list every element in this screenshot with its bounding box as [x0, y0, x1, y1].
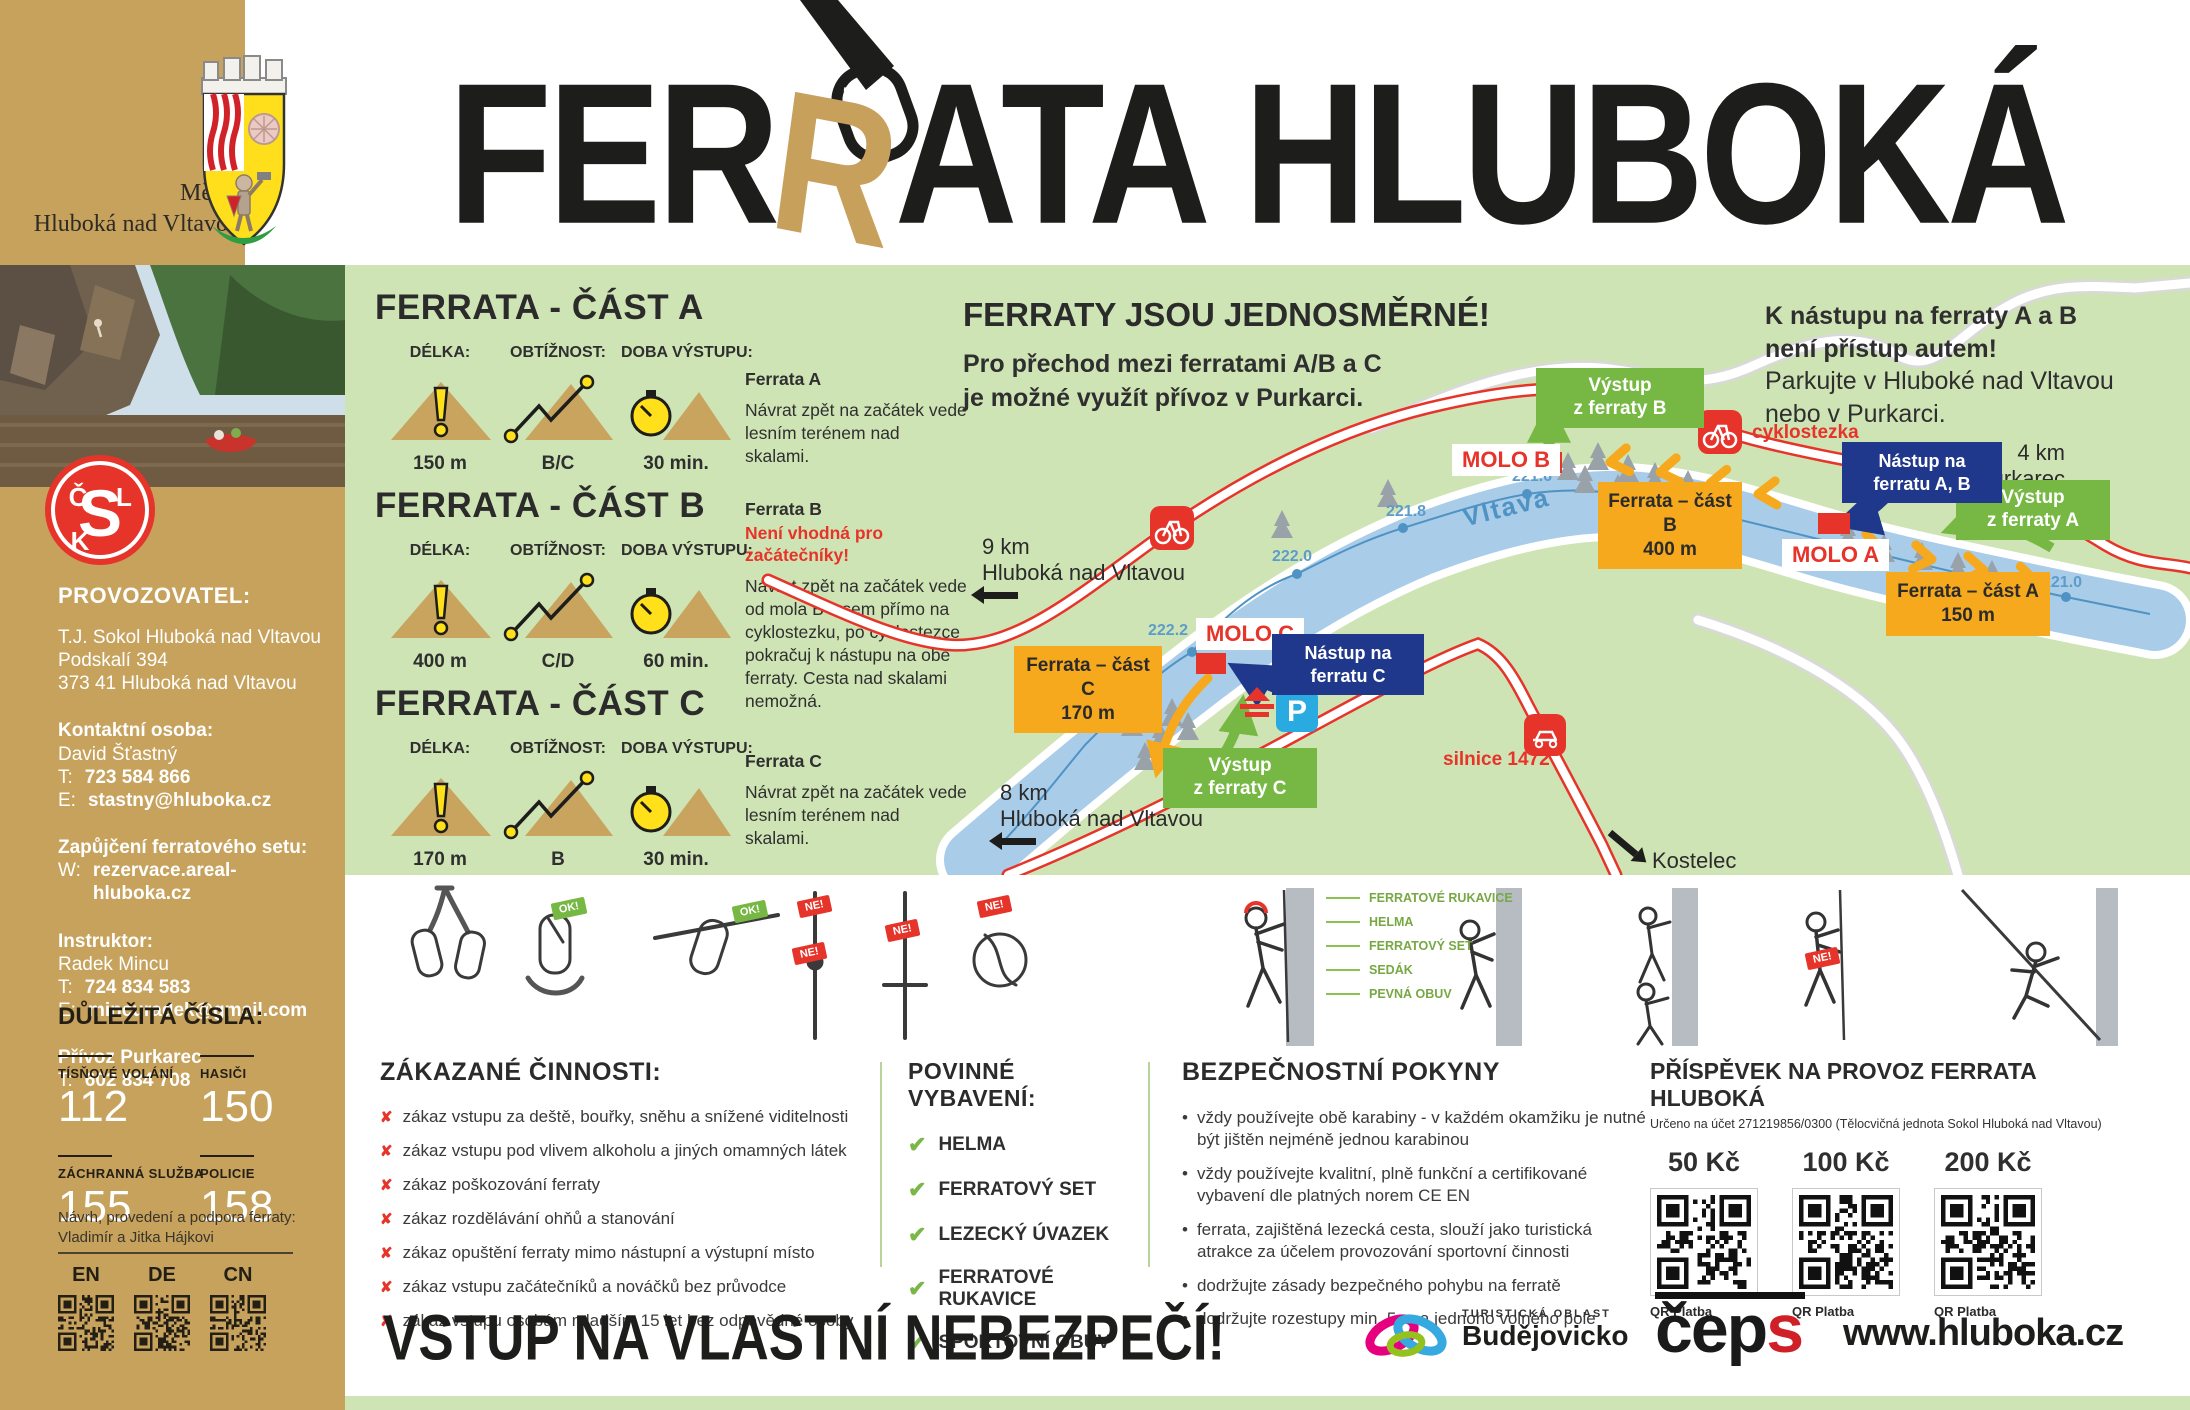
- required-item-text: LEZECKÝ ÚVAZEK: [938, 1224, 1109, 1246]
- provider-line: T.J. Sokol Hluboká nad Vltavou: [58, 626, 333, 649]
- equipment-label: FERRATOVÝ SET: [1326, 939, 1513, 953]
- budejovicko-logo-icon: [1362, 1300, 1454, 1370]
- rental-web: rezervace.areal-hluboka.cz: [93, 859, 333, 905]
- email-label: E:: [58, 789, 76, 812]
- language-column: EN: [58, 1264, 114, 1351]
- equipment-label-text: HELMA: [1369, 915, 1413, 929]
- equipment-label: HELMA: [1326, 915, 1513, 929]
- divider: [58, 1155, 112, 1157]
- map-note: K nástupu na ferraty A a B není přístup …: [1765, 300, 2185, 430]
- forbidden-item: ✘zákaz vstupu za deště, bouřky, sněhu a …: [380, 1107, 872, 1127]
- donation-column: 100 Kč QR Platba: [1792, 1147, 1900, 1319]
- tourist-area-label: TURISTICKÁ OBLAST: [1462, 1308, 1628, 1320]
- language-column: DE: [134, 1264, 190, 1351]
- emergency-label: POLICIE: [200, 1166, 342, 1181]
- equipment-label-text: PEVNÁ OBUV: [1369, 987, 1452, 1001]
- leader-line: [1326, 969, 1360, 971]
- instruction-pictograms: [360, 885, 2120, 1050]
- divider: [58, 1252, 293, 1254]
- required-item: ✔LEZECKÝ ÚVAZEK: [908, 1222, 1143, 1248]
- label-line: 170 m: [1018, 702, 1158, 726]
- equipment-label: SEDÁK: [1326, 963, 1513, 977]
- equipment-label: PEVNÁ OBUV: [1326, 987, 1513, 1001]
- equipment-label-text: SEDÁK: [1369, 963, 1413, 977]
- contour-label: 222.0: [1272, 548, 1312, 566]
- bullet-icon: •: [1182, 1107, 1188, 1152]
- ceps-letters: p: [1727, 1291, 1767, 1367]
- emergency-label: HASIČI: [200, 1066, 342, 1081]
- bike-icon: [1698, 410, 1742, 454]
- map-heading: FERRATY JSOU JEDNOSMĚRNÉ!: [963, 296, 1490, 334]
- forbidden-heading: ZÁKAZANÉ ČINNOSTI:: [380, 1058, 872, 1087]
- label-line: Nástup na: [1278, 642, 1418, 665]
- map-subtext-line1: Pro přechod mezi ferratami A/B a C: [963, 348, 1382, 382]
- label-line: 400 m: [1602, 538, 1738, 562]
- x-icon: ✘: [380, 1244, 393, 1262]
- label-line: ferratu C: [1278, 665, 1418, 688]
- language-qr-code: [210, 1295, 266, 1351]
- safety-item: •dodržujte zásady bezpečného pohybu na f…: [1182, 1275, 1652, 1297]
- rental-heading: Zapůjčení ferratového setu:: [58, 836, 333, 859]
- payment-qr-code: [1657, 1195, 1751, 1289]
- entry-c-label: Nástup na ferratu C: [1272, 634, 1424, 695]
- forbidden-item-text: zákaz vstupu začátečníků a nováčků bez p…: [403, 1277, 787, 1297]
- title-part: FER: [448, 42, 776, 266]
- bullet-icon: •: [1182, 1275, 1188, 1297]
- contour-label: 221.8: [1386, 503, 1426, 521]
- forbidden-list: ✘zákaz vstupu za deště, bouřky, sněhu a …: [380, 1107, 872, 1331]
- bullet-icon: •: [1182, 1219, 1188, 1264]
- poster: Město Hluboká nad Vltavou: [0, 0, 2190, 1410]
- donation-amount: 200 Kč: [1934, 1147, 2042, 1178]
- emergency-number: 112: [58, 1085, 200, 1129]
- ceps-letters: če: [1655, 1291, 1727, 1367]
- label-line: Výstup: [1169, 755, 1311, 778]
- label-line: Ferrata – část C: [1018, 654, 1158, 702]
- divider: [200, 1055, 254, 1057]
- contact-phone: 723 584 866: [85, 766, 191, 789]
- direction-hluboka-9km: 9 km Hluboká nad Vltavou: [982, 534, 1185, 587]
- language-qr-code: [58, 1295, 114, 1351]
- label-line: 150 m: [1890, 604, 2046, 628]
- check-icon: ✔: [908, 1177, 926, 1203]
- label-line: z ferraty A: [1962, 510, 2104, 533]
- label-line: z ferraty B: [1542, 398, 1698, 421]
- title-part: ATA HLUBOKÁ: [895, 42, 2066, 266]
- exit-b-label: Výstup z ferraty B: [1536, 368, 1704, 428]
- equipment-label-text: FERRATOVÉ RUKAVICE: [1369, 891, 1513, 905]
- required-item: ✔FERRATOVÝ SET: [908, 1177, 1143, 1203]
- coat-of-arms-icon: [196, 46, 292, 251]
- forbidden-item-text: zákaz opuštění ferraty mimo nástupní a v…: [403, 1243, 815, 1263]
- x-icon: ✘: [380, 1278, 393, 1296]
- emergency-cell: HASIČI 150: [200, 1055, 342, 1129]
- equipment-label-text: FERRATOVÝ SET: [1369, 939, 1473, 953]
- label-line: z ferraty C: [1169, 778, 1311, 801]
- provider-heading: PROVOZOVATEL:: [58, 583, 333, 610]
- ferrata-b-label: Ferrata – část B 400 m: [1598, 482, 1742, 569]
- direction-kostelec: Kostelec: [1652, 848, 1736, 874]
- provider-line: 373 41 Hluboká nad Vltavou: [58, 672, 333, 695]
- leader-line: [1326, 897, 1360, 899]
- language-qr-row: EN DE CN: [58, 1264, 266, 1351]
- title-gold-r: R: [761, 59, 905, 279]
- required-item: ✔HELMA: [908, 1132, 1143, 1158]
- safety-item: •vždy používejte obě karabiny - v každém…: [1182, 1107, 1652, 1152]
- language-code: DE: [134, 1264, 190, 1287]
- emergency-grid: TÍSŇOVÉ VOLÁNÍ 112 HASIČI 150 ZÁCHRANNÁ …: [58, 1055, 338, 1229]
- check-icon: ✔: [908, 1276, 926, 1302]
- molo-a-label: MOLO A: [1782, 539, 1889, 571]
- map-note-line: K nástupu na ferraty A a B: [1765, 300, 2185, 333]
- language-code: EN: [58, 1264, 114, 1287]
- divider: [1148, 1062, 1150, 1267]
- svg-text:P: P: [1287, 695, 1307, 728]
- leader-line: [1326, 921, 1360, 923]
- website-url: www.hluboka.cz: [1843, 1312, 2123, 1355]
- safety-list: •vždy používejte obě karabiny - v každém…: [1182, 1107, 1652, 1331]
- emergency-label: ZÁCHRANNÁ SLUŽBA: [58, 1166, 200, 1181]
- ferry-icon: [1240, 687, 1274, 717]
- arrow-left-icon: [1002, 838, 1036, 845]
- forbidden-item: ✘zákaz opuštění ferraty mimo nástupní a …: [380, 1243, 872, 1263]
- required-heading: POVINNÉ VYBAVENÍ:: [908, 1058, 1143, 1112]
- check-icon: ✔: [908, 1222, 926, 1248]
- map-note-line: není přístup autem!: [1765, 333, 2185, 366]
- ferrata-c-label: Ferrata – část C 170 m: [1014, 646, 1162, 733]
- divider: [58, 1055, 112, 1057]
- donation-amount: 100 Kč: [1792, 1147, 1900, 1178]
- parking-icon: P: [1276, 690, 1318, 732]
- safety-item-text: vždy používejte kvalitní, plně funkční a…: [1197, 1163, 1652, 1208]
- required-item-text: FERRATOVÝ SET: [938, 1179, 1096, 1201]
- bullet-icon: •: [1182, 1163, 1188, 1208]
- x-icon: ✘: [380, 1210, 393, 1228]
- provider-line: Podskalí 394: [58, 649, 333, 672]
- contour-label: 222.2: [1148, 622, 1188, 640]
- emergency-label: TÍSŇOVÉ VOLÁNÍ: [58, 1066, 200, 1081]
- required-item-text: HELMA: [938, 1134, 1006, 1156]
- safety-item-text: vždy používejte obě karabiny - v každém …: [1197, 1107, 1652, 1152]
- donation-column: 200 Kč QR Platba: [1934, 1147, 2042, 1319]
- forbidden-item-text: zákaz vstupu pod vlivem alkoholu a jinýc…: [403, 1141, 847, 1161]
- budejovicko-logo-text: TURISTICKÁ OBLAST Budějovicko: [1462, 1308, 1628, 1352]
- divider: [200, 1155, 254, 1157]
- credits-line2: Vladimír a Jitka Hájkovi: [58, 1228, 328, 1248]
- label-line: Nástup na: [1848, 450, 1996, 473]
- label-line: Ferrata – část B: [1602, 490, 1738, 538]
- sokol-logo: S Č L K: [44, 454, 156, 566]
- leader-line: [1326, 993, 1360, 995]
- payment-qr-frame: [1650, 1188, 1758, 1296]
- x-icon: ✘: [380, 1176, 393, 1194]
- arrow-left-icon: [984, 592, 1018, 599]
- emergency-cell: TÍSŇOVÉ VOLÁNÍ 112: [58, 1055, 200, 1129]
- instructor-heading: Instruktor:: [58, 930, 333, 953]
- molo-b-label: MOLO B: [1452, 444, 1560, 476]
- credits: Návrh, provedení a podpora ferraty: Vlad…: [58, 1208, 328, 1249]
- phone-label: T:: [58, 766, 73, 789]
- forbidden-item: ✘zákaz rozdělávání ohňů a stanování: [380, 1209, 872, 1229]
- web-label: W:: [58, 859, 81, 905]
- contact-name: David Šťastný: [58, 743, 333, 766]
- leader-line: [1326, 945, 1360, 947]
- emergency-heading: DŮLEŽITÁ ČÍSLA:: [58, 1003, 338, 1031]
- contact-email: stastny@hluboka.cz: [88, 789, 271, 812]
- credits-line1: Návrh, provedení a podpora ferraty:: [58, 1208, 328, 1228]
- emergency-number: 150: [200, 1085, 342, 1129]
- safety-item-text: dodržujte zásady bezpečného pohybu na fe…: [1197, 1275, 1561, 1297]
- forbidden-item: ✘zákaz vstupu pod vlivem alkoholu a jiný…: [380, 1141, 872, 1161]
- danger-warning: VSTUP NA VLASTNÍ NEBEZPEČÍ!: [383, 1302, 1225, 1375]
- safety-item-text: ferrata, zajištěná lezecká cesta, slouží…: [1197, 1219, 1652, 1264]
- road-1472-label: silnice 1472: [1443, 749, 1550, 771]
- equipment-labels: FERRATOVÉ RUKAVICE HELMA FERRATOVÝ SET S…: [1326, 891, 1513, 1011]
- bike-path-label: cyklostezka: [1752, 422, 1859, 444]
- divider: [880, 1062, 882, 1267]
- instructor-phone: 724 834 583: [85, 976, 191, 999]
- language-column: CN: [210, 1264, 266, 1351]
- bottom-green-strip: [345, 1396, 2190, 1410]
- entry-ab-label: Nástup na ferratu A, B: [1842, 442, 2002, 503]
- ferrata-a-label: Ferrata – část A 150 m: [1886, 572, 2050, 636]
- phone-label: T:: [58, 976, 73, 999]
- safety-section: BEZPEČNOSTNÍ POKYNY •vždy používejte obě…: [1182, 1058, 1652, 1342]
- emergency-numbers: DŮLEŽITÁ ČÍSLA: TÍSŇOVÉ VOLÁNÍ 112 HASIČ…: [58, 1003, 338, 1229]
- map-note-line: Parkujte v Hluboké nad Vltavou: [1765, 365, 2185, 398]
- ceps-logo: čeps: [1655, 1292, 1805, 1360]
- equipment-label: FERRATOVÉ RUKAVICE: [1326, 891, 1513, 905]
- contact-heading: Kontaktní osoba:: [58, 719, 333, 742]
- payment-qr-code: [1799, 1195, 1893, 1289]
- exit-c-label: Výstup z ferraty C: [1163, 748, 1317, 808]
- svg-text:L: L: [116, 482, 132, 512]
- distance: 9 km: [982, 534, 1185, 560]
- svg-text:K: K: [71, 526, 90, 556]
- instructor-name: Radek Mincu: [58, 953, 333, 976]
- x-icon: ✘: [380, 1108, 393, 1126]
- label-line: Ferrata – část A: [1890, 580, 2046, 604]
- safety-item: •ferrata, zajištěná lezecká cesta, slouž…: [1182, 1219, 1652, 1264]
- forbidden-item-text: zákaz poškozování ferraty: [403, 1175, 600, 1195]
- language-code: CN: [210, 1264, 266, 1287]
- budejovicko-label: Budějovicko: [1462, 1320, 1628, 1352]
- safety-item: •vždy používejte kvalitní, plně funkční …: [1182, 1163, 1652, 1208]
- x-icon: ✘: [380, 1142, 393, 1160]
- forbidden-item: ✘zákaz poškozování ferraty: [380, 1175, 872, 1195]
- forbidden-item-text: zákaz rozdělávání ohňů a stanování: [403, 1209, 675, 1229]
- label-line: ferratu A, B: [1848, 473, 1996, 496]
- forbidden-item-text: zákaz vstupu za deště, bouřky, sněhu a s…: [403, 1107, 849, 1127]
- poster-title: FERRATA HLUBOKÁ: [448, 54, 2066, 255]
- map-subtext-line2: je možné využít přívoz v Purkarci.: [963, 382, 1382, 416]
- payment-qr-frame: [1934, 1188, 2042, 1296]
- payment-qr-code: [1941, 1195, 2035, 1289]
- map-subtext: Pro přechod mezi ferratami A/B a C je mo…: [963, 348, 1382, 416]
- payment-qr-frame: [1792, 1188, 1900, 1296]
- donation-subheading: Určeno na účet 271219856/0300 (Tělocvičn…: [1650, 1117, 2130, 1131]
- forbidden-item: ✘zákaz vstupu začátečníků a nováčků bez …: [380, 1277, 872, 1297]
- donation-section: PŘÍSPĚVEK NA PROVOZ FERRATA HLUBOKÁ Urče…: [1650, 1058, 2130, 1319]
- safety-heading: BEZPEČNOSTNÍ POKYNY: [1182, 1058, 1652, 1087]
- label-line: Výstup: [1542, 375, 1698, 398]
- donation-amount: 50 Kč: [1650, 1147, 1758, 1178]
- donation-heading: PŘÍSPĚVEK NA PROVOZ FERRATA HLUBOKÁ: [1650, 1058, 2130, 1112]
- check-icon: ✔: [908, 1132, 926, 1158]
- ceps-letters: s: [1766, 1291, 1802, 1367]
- language-qr-code: [134, 1295, 190, 1351]
- place: Hluboká nad Vltavou: [1000, 806, 1203, 832]
- place: Hluboká nad Vltavou: [982, 560, 1185, 586]
- svg-text:Č: Č: [69, 482, 88, 512]
